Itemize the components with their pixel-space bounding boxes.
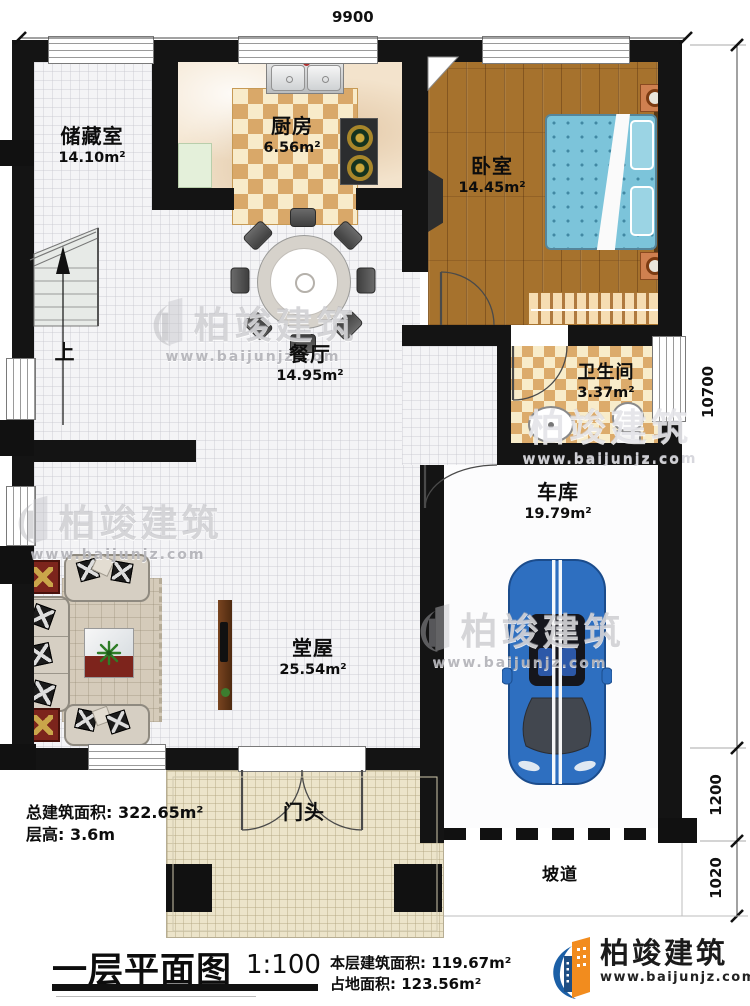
- kitchen-counter: [178, 143, 212, 188]
- dim-right-height: 10700: [699, 366, 717, 418]
- floor-plan-page: 柏竣建筑 www.baijunjz.com 柏竣建筑 www.baijunjz.…: [0, 0, 750, 1006]
- room-label-porch: 门头: [283, 796, 325, 825]
- coffee-table: [84, 628, 134, 678]
- floor-area-text: 本层建筑面积: 119.67m²: [330, 953, 511, 974]
- dining-chair: [357, 268, 376, 294]
- brand-name: 柏竣建筑: [600, 936, 750, 970]
- wall-living-south-right: [364, 748, 420, 770]
- wardrobe: [528, 292, 662, 325]
- dining-chair: [290, 208, 316, 227]
- wall-bathroom-west: [497, 325, 511, 443]
- floor-height-text: 层高: 3.6m: [26, 824, 203, 846]
- title-underline: [52, 984, 318, 991]
- title-underline-thin: [56, 996, 256, 997]
- window-storage: [48, 36, 154, 64]
- entry-door-frame: [238, 746, 366, 772]
- plant-icon: [95, 639, 123, 667]
- tv-icon: [220, 622, 228, 662]
- window-bathroom: [652, 336, 686, 422]
- window-bedroom: [482, 36, 630, 64]
- dining-chair: [231, 268, 250, 294]
- stairs-up-label: 上: [55, 336, 76, 365]
- room-label-garage: 车库 19.79m²: [524, 476, 591, 522]
- room-label-storage: 储藏室 14.10m²: [58, 120, 125, 166]
- window-left-living: [6, 486, 36, 546]
- porch-column: [166, 864, 212, 912]
- room-label-dining: 餐厅 14.95m²: [276, 338, 343, 384]
- brand-url: www.baijunjz.com: [600, 970, 750, 985]
- burner-icon: [347, 155, 373, 181]
- dining-table: [257, 235, 351, 329]
- garage-door-dashed: [444, 828, 658, 840]
- building-summary: 总建筑面积: 322.65m² 层高: 3.6m: [26, 802, 203, 846]
- room-label-bedroom: 卧室 14.45m²: [458, 150, 525, 196]
- title-areas: 本层建筑面积: 119.67m² 占地面积: 123.56m²: [330, 953, 511, 995]
- bed-pillow: [630, 186, 654, 236]
- wall-storage-kitchen: [152, 40, 178, 210]
- brand-logo: 柏竣建筑 www.baijunjz.com: [548, 936, 750, 1000]
- window-kitchen: [238, 36, 378, 64]
- wall-garage-west: [420, 465, 444, 843]
- window-living-south: [88, 744, 166, 770]
- wall-kitchen-bottom-left: [152, 188, 234, 210]
- bedroom-tv-icon: [428, 170, 443, 232]
- dim-right-mid: 1200: [707, 774, 725, 816]
- site-area-text: 占地面积: 123.56m²: [330, 974, 511, 995]
- wall-dining-living: [12, 440, 196, 462]
- plant-icon: [221, 688, 230, 697]
- pilaster: [0, 546, 34, 584]
- room-label-hall: 堂屋 25.54m²: [279, 632, 346, 678]
- dim-top-width: 9900: [332, 8, 374, 26]
- total-area-text: 总建筑面积: 322.65m²: [26, 802, 203, 824]
- sofa-pillow: [110, 560, 133, 583]
- room-label-kitchen: 厨房 6.56m²: [263, 110, 320, 156]
- pilaster: [0, 420, 34, 456]
- room-label-ramp: 坡道: [542, 860, 578, 885]
- wall-bedroom-west: [402, 40, 428, 272]
- room-label-bathroom: 卫生间 3.37m²: [577, 358, 634, 401]
- wall-living-south-mid: [166, 748, 240, 770]
- wall-bathroom-south: [497, 443, 682, 465]
- bathroom-sink: [528, 406, 574, 443]
- bed-pillow: [630, 120, 654, 170]
- brand-logo-icon: [548, 936, 594, 1000]
- dim-right-low: 1020: [707, 857, 725, 899]
- window-left-stair: [6, 358, 36, 420]
- pilaster: [0, 744, 36, 770]
- burner-icon: [347, 125, 373, 151]
- porch-column: [394, 864, 442, 912]
- gas-stove: [340, 118, 378, 185]
- plan-scale: 1:100: [246, 950, 321, 980]
- tv-board: [218, 600, 232, 710]
- wall-bedroom-south-left: [402, 325, 510, 346]
- wall-right: [658, 40, 682, 843]
- wall-kitchen-bottom-right: [356, 188, 402, 210]
- toilet: [612, 402, 644, 446]
- car: [502, 556, 612, 788]
- pilaster: [0, 140, 34, 166]
- wall-right-foot: [658, 818, 697, 843]
- corridor-floor: [402, 346, 497, 465]
